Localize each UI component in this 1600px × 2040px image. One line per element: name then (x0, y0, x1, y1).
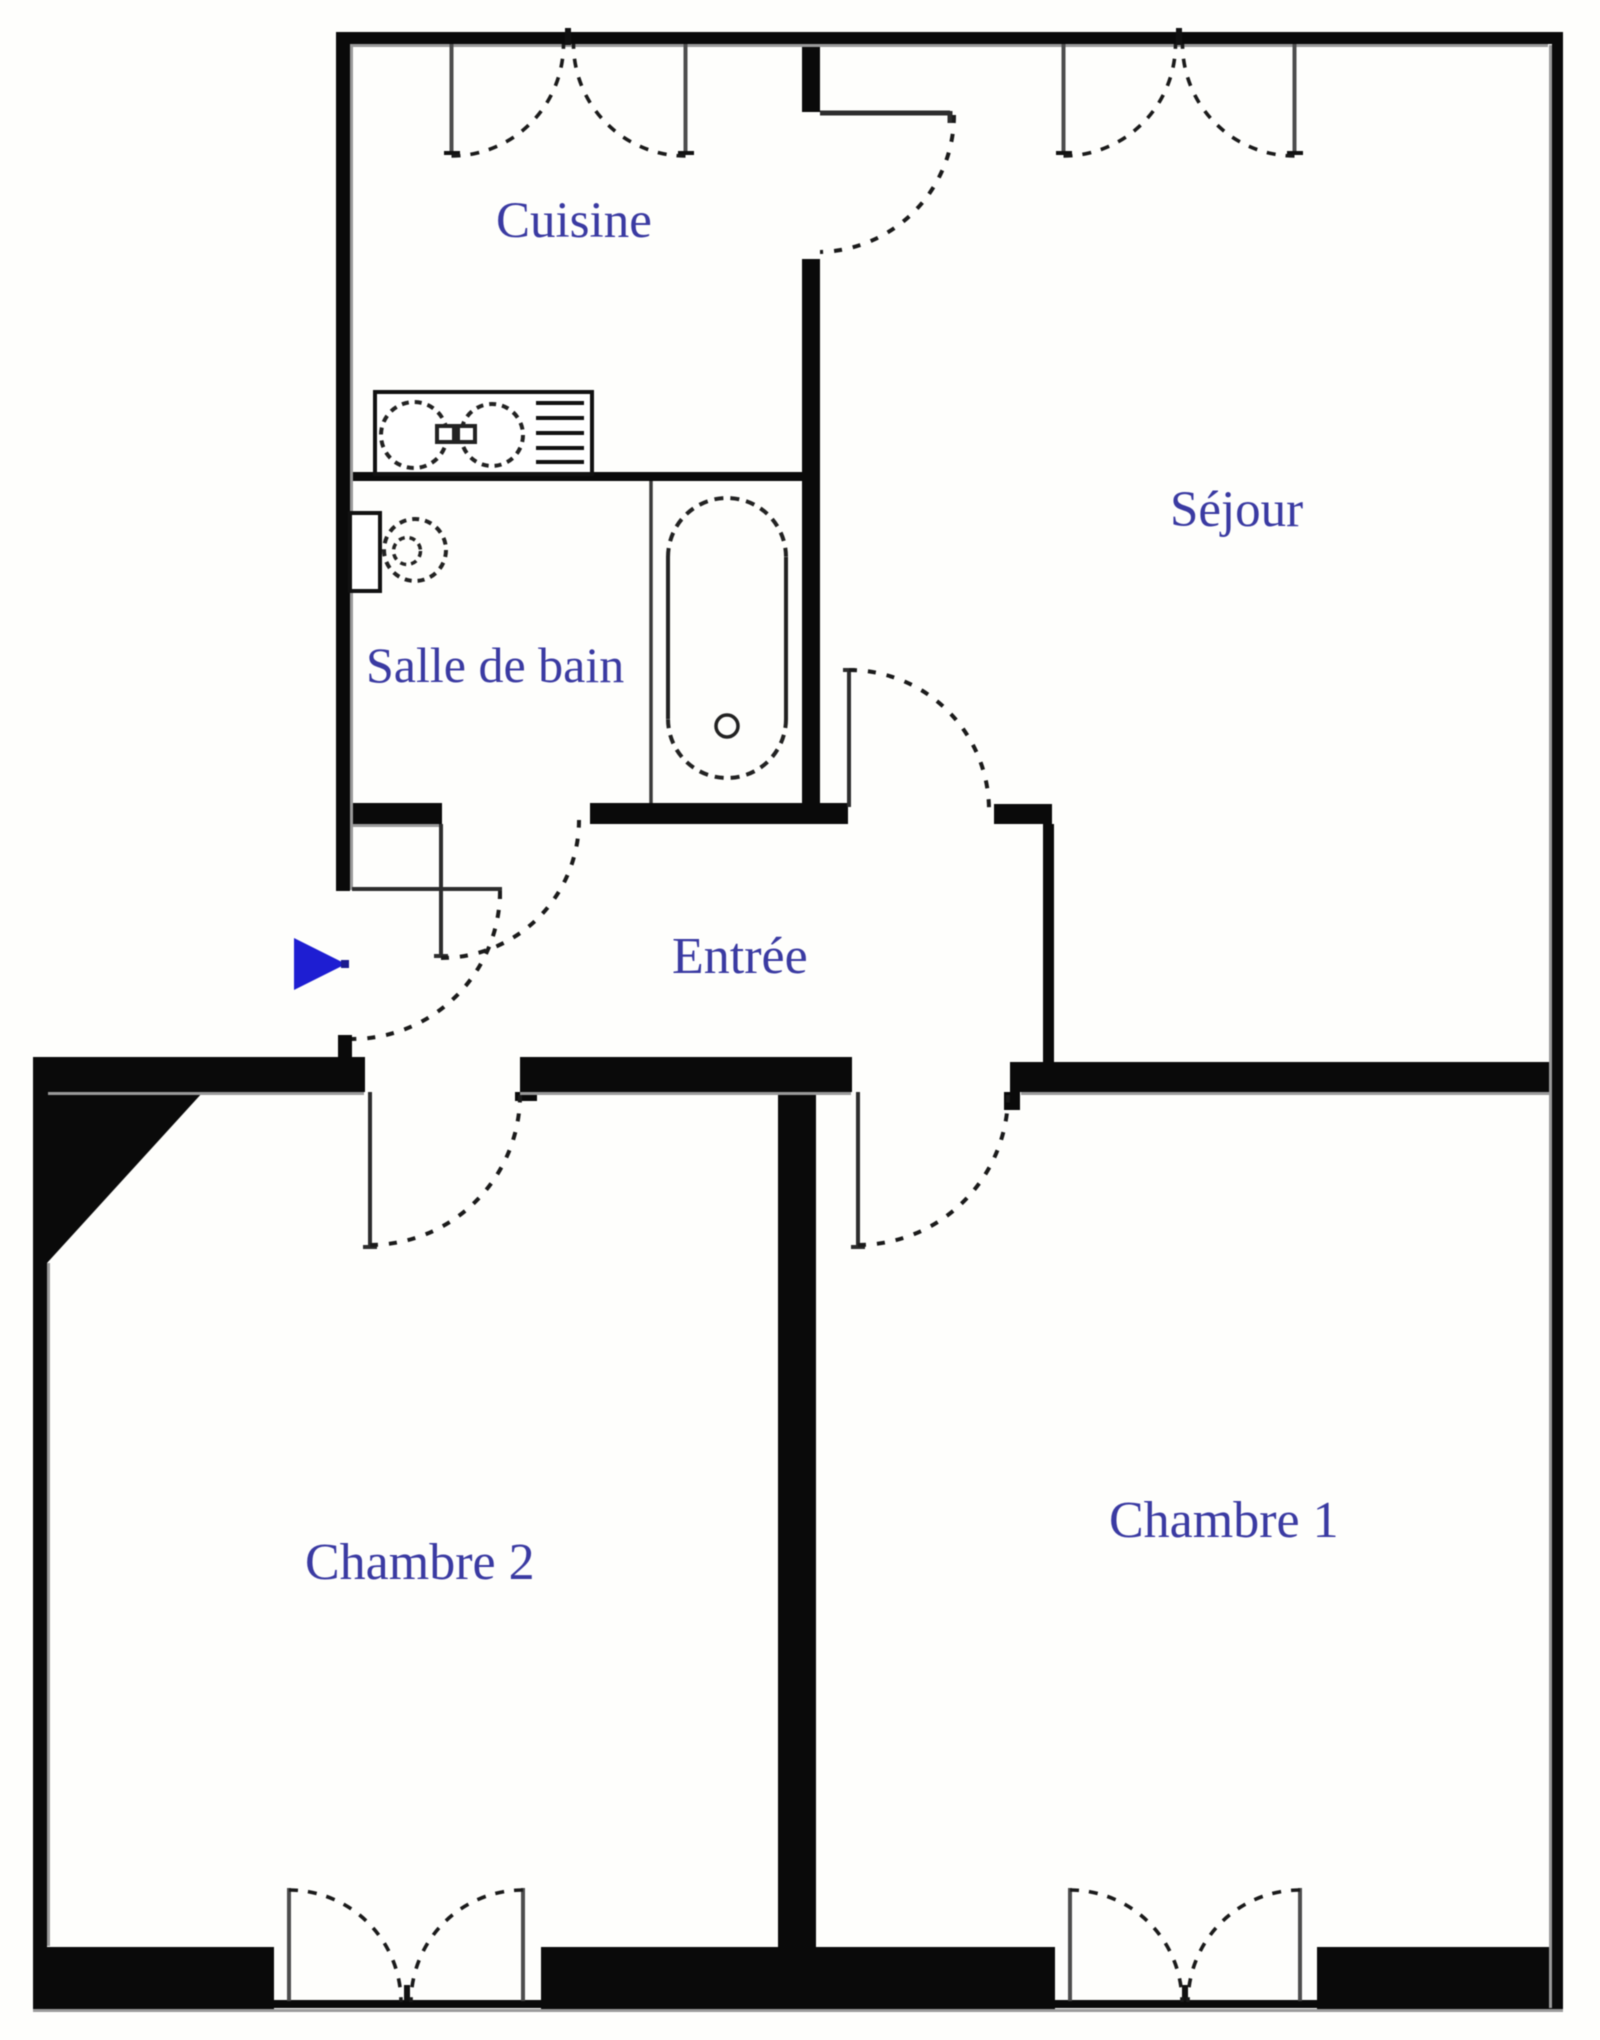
svg-text:Entrée: Entrée (672, 928, 808, 985)
svg-text:Chambre 1: Chambre 1 (1109, 1492, 1339, 1549)
svg-text:Cuisine: Cuisine (496, 193, 652, 249)
svg-text:Chambre 2: Chambre 2 (305, 1534, 535, 1591)
svg-text:Salle de bain: Salle de bain (366, 637, 624, 693)
svg-text:Séjour: Séjour (1170, 482, 1303, 538)
